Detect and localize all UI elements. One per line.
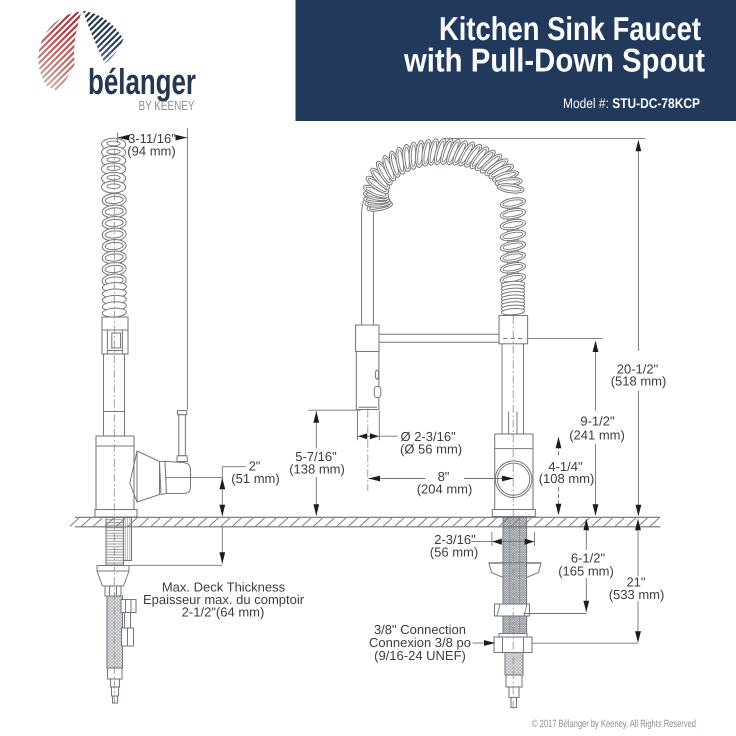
svg-text:(9/16-24 UNEF): (9/16-24 UNEF) xyxy=(374,648,466,663)
svg-text:(241 mm): (241 mm) xyxy=(569,428,625,443)
svg-text:(94 mm): (94 mm) xyxy=(127,144,175,159)
svg-text:9-1/2": 9-1/2" xyxy=(580,414,615,429)
svg-text:(533 mm): (533 mm) xyxy=(609,587,665,602)
svg-text:(Ø 56 mm): (Ø 56 mm) xyxy=(400,442,462,457)
svg-text:(204 mm): (204 mm) xyxy=(417,482,473,497)
svg-text:(518 mm): (518 mm) xyxy=(611,374,667,389)
svg-text:(165 mm): (165 mm) xyxy=(558,564,614,579)
svg-text:with Pull-Down Spout: with Pull-Down Spout xyxy=(403,42,705,79)
svg-text:BY KEENEY: BY KEENEY xyxy=(139,98,195,113)
svg-text:bélanger: bélanger xyxy=(88,61,196,102)
svg-text:(138 mm): (138 mm) xyxy=(289,462,345,477)
svg-text:Model #: STU-DC-78KCP: Model #: STU-DC-78KCP xyxy=(563,95,700,111)
svg-text:(56 mm): (56 mm) xyxy=(430,545,478,560)
svg-text:© 2017 Bélanger by Keeney. All: © 2017 Bélanger by Keeney. All Rights Re… xyxy=(532,718,696,730)
svg-text:2-1/2"(64 mm): 2-1/2"(64 mm) xyxy=(182,605,265,620)
svg-text:(108 mm): (108 mm) xyxy=(539,471,595,486)
svg-text:(51 mm): (51 mm) xyxy=(231,471,279,486)
